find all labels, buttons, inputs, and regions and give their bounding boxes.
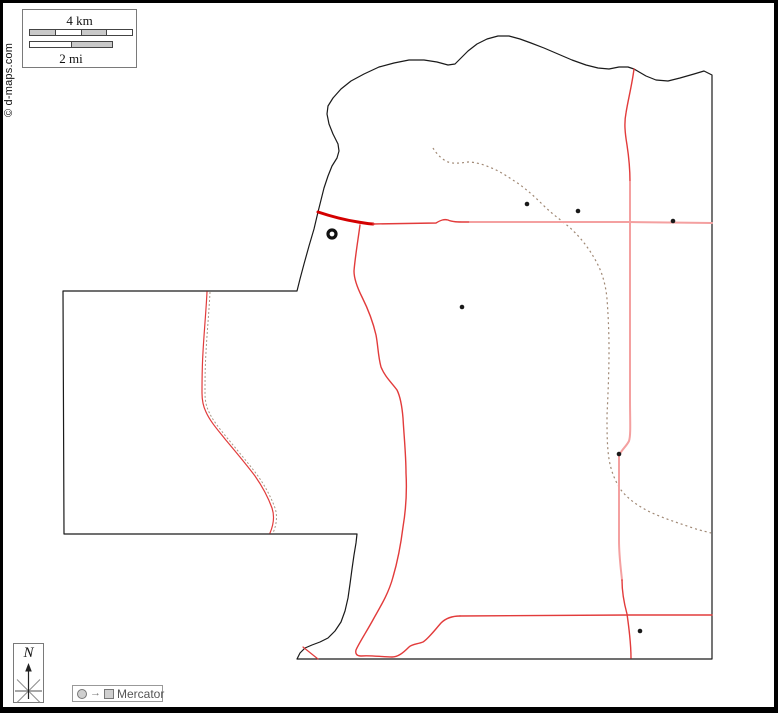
road-top-horizontal-east	[470, 222, 712, 223]
road-east-ns-bottom	[622, 580, 631, 658]
north-label: N	[14, 646, 43, 661]
trail-dotted-main	[433, 148, 711, 533]
projection-label: Mercator	[117, 688, 164, 700]
scale-bar-segment	[107, 30, 132, 35]
city-marker	[328, 230, 336, 238]
scale-bar: 4 km 2 mi	[22, 9, 137, 68]
scale-bar-segment	[56, 30, 82, 35]
copyright-text: © d-maps.com	[3, 43, 15, 117]
trail-dotted-arm	[205, 292, 276, 533]
road-stub-southwest	[303, 647, 318, 659]
map-page: 4 km 2 mi © d-maps.com N → Mercator	[0, 0, 778, 713]
scale-mi-label: 2 mi	[29, 52, 113, 65]
globe-circle-icon	[77, 689, 87, 699]
town-dot	[617, 452, 622, 457]
compass-icon	[14, 661, 43, 704]
road-bottom-horizontal	[460, 615, 712, 616]
scale-km-bar	[29, 29, 133, 36]
map-canvas	[0, 0, 778, 713]
road-east-ns-light	[619, 182, 630, 580]
county-boundary	[63, 36, 712, 659]
town-dot	[671, 219, 676, 224]
scale-bar-segment	[30, 42, 72, 47]
town-dot	[525, 202, 530, 207]
town-dot	[638, 629, 643, 634]
projection-legend: → Mercator	[72, 685, 163, 702]
projection-arrow-icon: →	[90, 688, 101, 699]
town-dot	[576, 209, 581, 214]
projection-square-icon	[104, 689, 114, 699]
scale-mi-bar	[29, 41, 113, 48]
road-west-arm	[202, 292, 273, 533]
road-nw-thick	[318, 212, 373, 224]
north-arrow-box: N	[13, 643, 44, 703]
scale-bar-segment	[82, 30, 108, 35]
road-center-ns	[354, 225, 460, 657]
scale-km-label: 4 km	[23, 14, 136, 27]
road-top-horizontal-mid	[373, 220, 470, 224]
image-frame	[0, 0, 778, 713]
scale-bar-segment	[30, 30, 56, 35]
scale-bar-segment	[72, 42, 113, 47]
road-east-ns-top	[625, 69, 634, 182]
town-dot	[460, 305, 465, 310]
